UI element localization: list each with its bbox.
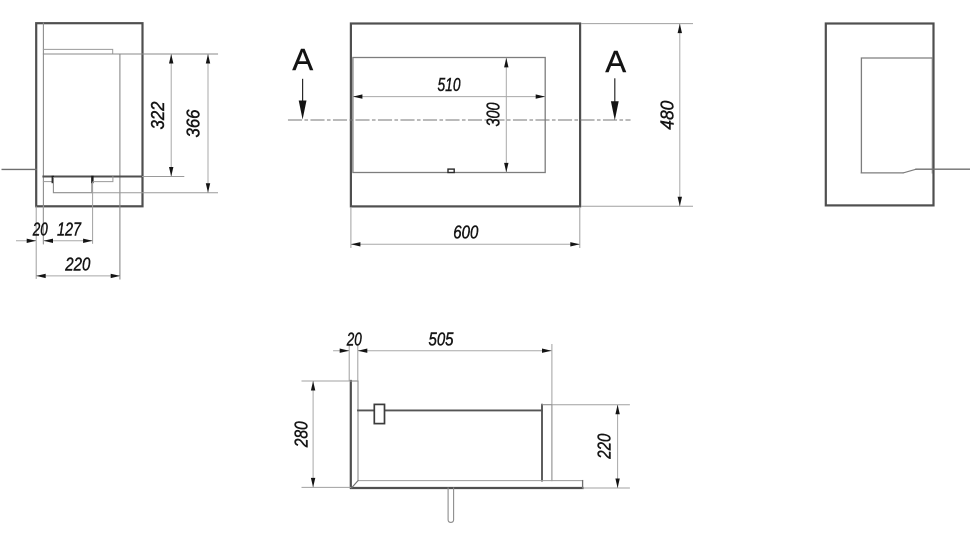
svg-text:480: 480 (656, 100, 677, 130)
svg-text:600: 600 (453, 222, 479, 243)
svg-text:220: 220 (64, 253, 90, 274)
svg-text:300: 300 (483, 102, 504, 127)
svg-text:322: 322 (147, 101, 168, 130)
svg-text:366: 366 (183, 109, 204, 138)
svg-text:505: 505 (429, 329, 455, 350)
svg-text:A: A (292, 42, 313, 77)
svg-text:A: A (605, 44, 626, 79)
svg-text:20: 20 (346, 329, 362, 350)
svg-text:220: 220 (594, 433, 615, 459)
svg-text:127: 127 (57, 218, 82, 239)
svg-text:510: 510 (438, 74, 462, 95)
svg-text:20: 20 (32, 218, 48, 239)
svg-text:280: 280 (290, 421, 311, 448)
